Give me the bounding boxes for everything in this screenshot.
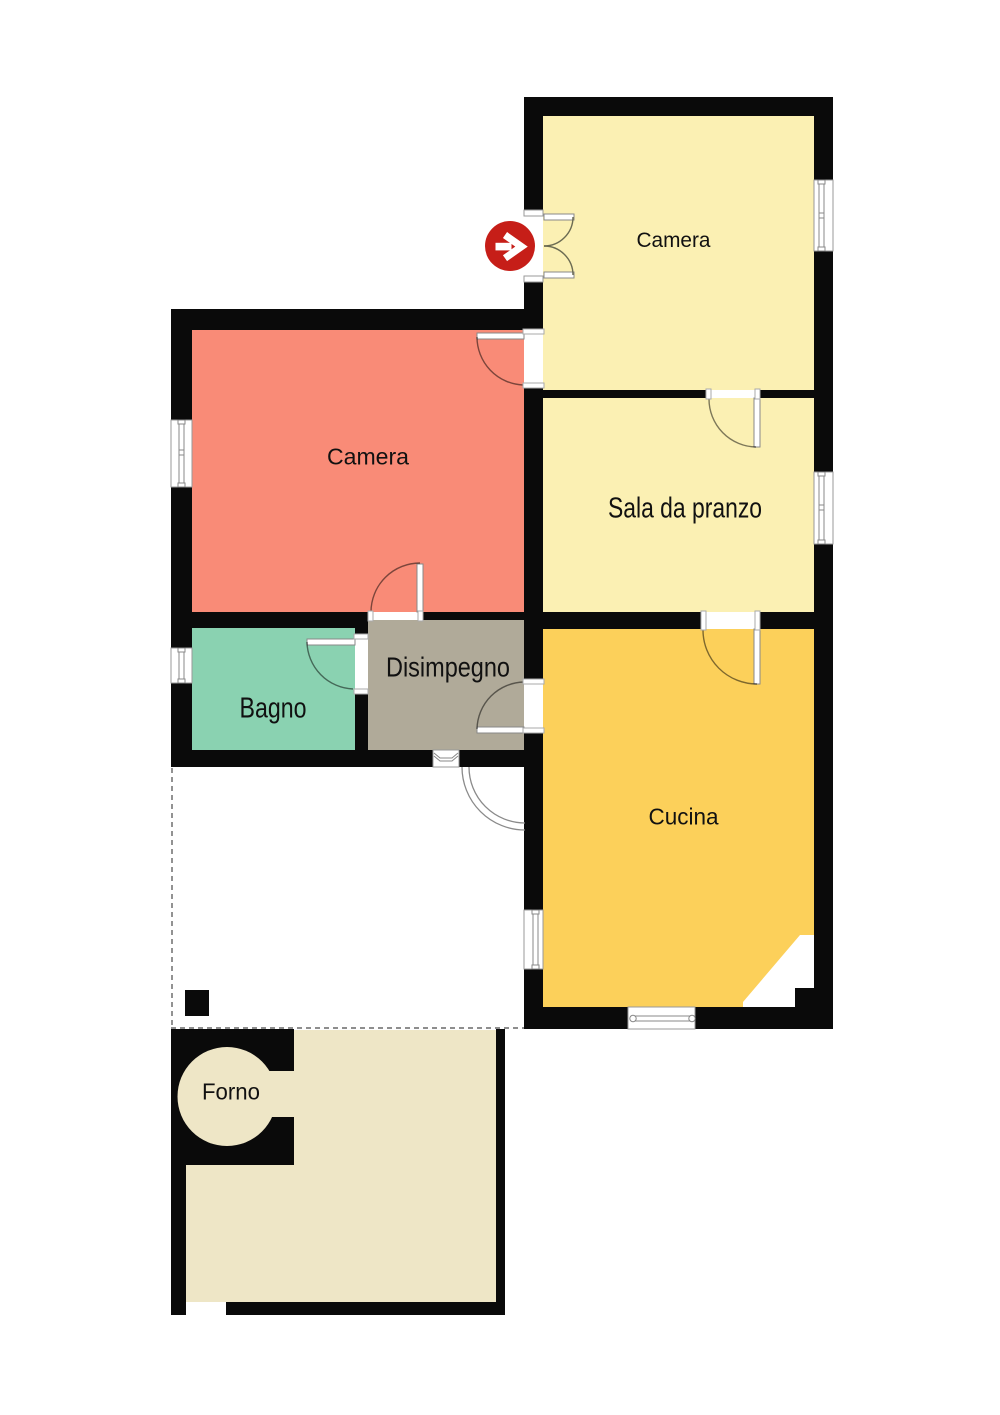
svg-text:Disimpegno: Disimpegno: [386, 652, 510, 683]
svg-text:Camera: Camera: [327, 444, 409, 470]
svg-text:Bagno: Bagno: [240, 693, 307, 725]
svg-text:Forno: Forno: [202, 1079, 260, 1105]
svg-text:Sala da pranzo: Sala da pranzo: [608, 493, 762, 525]
svg-text:Camera: Camera: [637, 229, 711, 252]
svg-text:Cucina: Cucina: [649, 804, 719, 830]
